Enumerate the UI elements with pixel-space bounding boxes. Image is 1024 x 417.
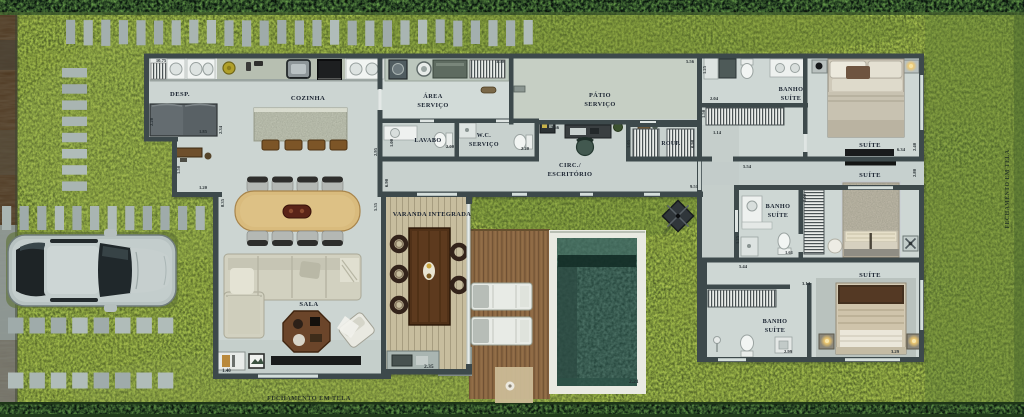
svg-text:2.20: 2.20 xyxy=(149,117,154,126)
svg-text:BANHO: BANHO xyxy=(779,86,804,93)
svg-text:3.50: 3.50 xyxy=(496,59,505,64)
svg-text:1.14: 1.14 xyxy=(713,130,722,135)
svg-text:VARANDA INTEGRADA: VARANDA INTEGRADA xyxy=(393,211,472,218)
svg-text:SALA: SALA xyxy=(299,301,318,308)
svg-text:2.34: 2.34 xyxy=(218,125,223,134)
svg-text:3.14: 3.14 xyxy=(802,281,811,286)
svg-text:1.05: 1.05 xyxy=(626,139,631,148)
svg-text:FECHAMENTO EM TELA: FECHAMENTO EM TELA xyxy=(1005,149,1011,228)
svg-text:1.50: 1.50 xyxy=(701,109,706,118)
svg-text:SUÍTE: SUÍTE xyxy=(768,211,789,219)
svg-text:2.66: 2.66 xyxy=(551,125,560,130)
svg-text:2.00: 2.00 xyxy=(802,193,807,202)
svg-text:BANHO: BANHO xyxy=(766,203,791,210)
svg-text:2.95: 2.95 xyxy=(373,147,378,156)
svg-text:2.20: 2.20 xyxy=(521,146,530,151)
svg-text:1.20: 1.20 xyxy=(199,185,208,190)
svg-text:SERVIÇO: SERVIÇO xyxy=(584,101,615,108)
svg-text:2.21: 2.21 xyxy=(629,379,639,385)
svg-text:W.C.: W.C. xyxy=(477,133,491,139)
svg-text:2.00: 2.00 xyxy=(446,144,455,149)
svg-text:COZINHA: COZINHA xyxy=(291,95,325,102)
svg-text:ROUP.: ROUP. xyxy=(661,141,680,147)
svg-text:SUÍTE: SUÍTE xyxy=(859,141,881,149)
svg-text:1.40: 1.40 xyxy=(222,369,231,374)
svg-text:SUÍTE: SUÍTE xyxy=(859,171,881,179)
svg-text:SERVIÇO: SERVIÇO xyxy=(417,102,448,109)
svg-text:5.54: 5.54 xyxy=(743,164,752,169)
svg-text:2.99: 2.99 xyxy=(784,349,793,354)
svg-text:2.40: 2.40 xyxy=(912,142,917,151)
svg-text:PÁTIO: PÁTIO xyxy=(589,91,611,99)
svg-text:3.29: 3.29 xyxy=(891,349,900,354)
svg-text:CIRC./: CIRC./ xyxy=(559,162,581,169)
svg-text:8.35: 8.35 xyxy=(220,198,225,207)
svg-text:ÁREA: ÁREA xyxy=(423,92,442,100)
svg-text:LAVABO: LAVABO xyxy=(414,137,441,144)
svg-text:SERVIÇO: SERVIÇO xyxy=(469,142,499,148)
svg-text:SUÍTE: SUÍTE xyxy=(781,94,802,102)
svg-text:2.04: 2.04 xyxy=(710,96,719,101)
svg-text:FECHAMENTO EM TELA: FECHAMENTO EM TELA xyxy=(267,395,351,402)
svg-text:5.56: 5.56 xyxy=(686,59,695,64)
svg-text:ESCRITÓRIO: ESCRITÓRIO xyxy=(548,170,593,178)
svg-text:0.98: 0.98 xyxy=(690,139,695,148)
svg-text:1.25: 1.25 xyxy=(735,235,740,244)
svg-text:5.35: 5.35 xyxy=(373,202,378,211)
svg-text:BANHO: BANHO xyxy=(763,318,788,325)
svg-text:10.75: 10.75 xyxy=(156,58,167,63)
svg-text:DESP.: DESP. xyxy=(170,91,190,98)
svg-text:6.90: 6.90 xyxy=(384,178,389,187)
svg-text:SUÍTE: SUÍTE xyxy=(859,271,881,279)
svg-text:6.34: 6.34 xyxy=(897,147,906,152)
svg-text:1.61: 1.61 xyxy=(785,250,794,255)
svg-text:1.85: 1.85 xyxy=(199,129,208,134)
svg-text:9.51: 9.51 xyxy=(690,184,699,189)
svg-text:1.50: 1.50 xyxy=(176,165,181,174)
svg-text:2.80: 2.80 xyxy=(912,168,917,177)
svg-text:SUÍTE: SUÍTE xyxy=(765,326,786,334)
svg-text:1.25: 1.25 xyxy=(702,65,707,74)
svg-text:1.00: 1.00 xyxy=(389,138,394,147)
svg-text:5.44: 5.44 xyxy=(739,264,748,269)
